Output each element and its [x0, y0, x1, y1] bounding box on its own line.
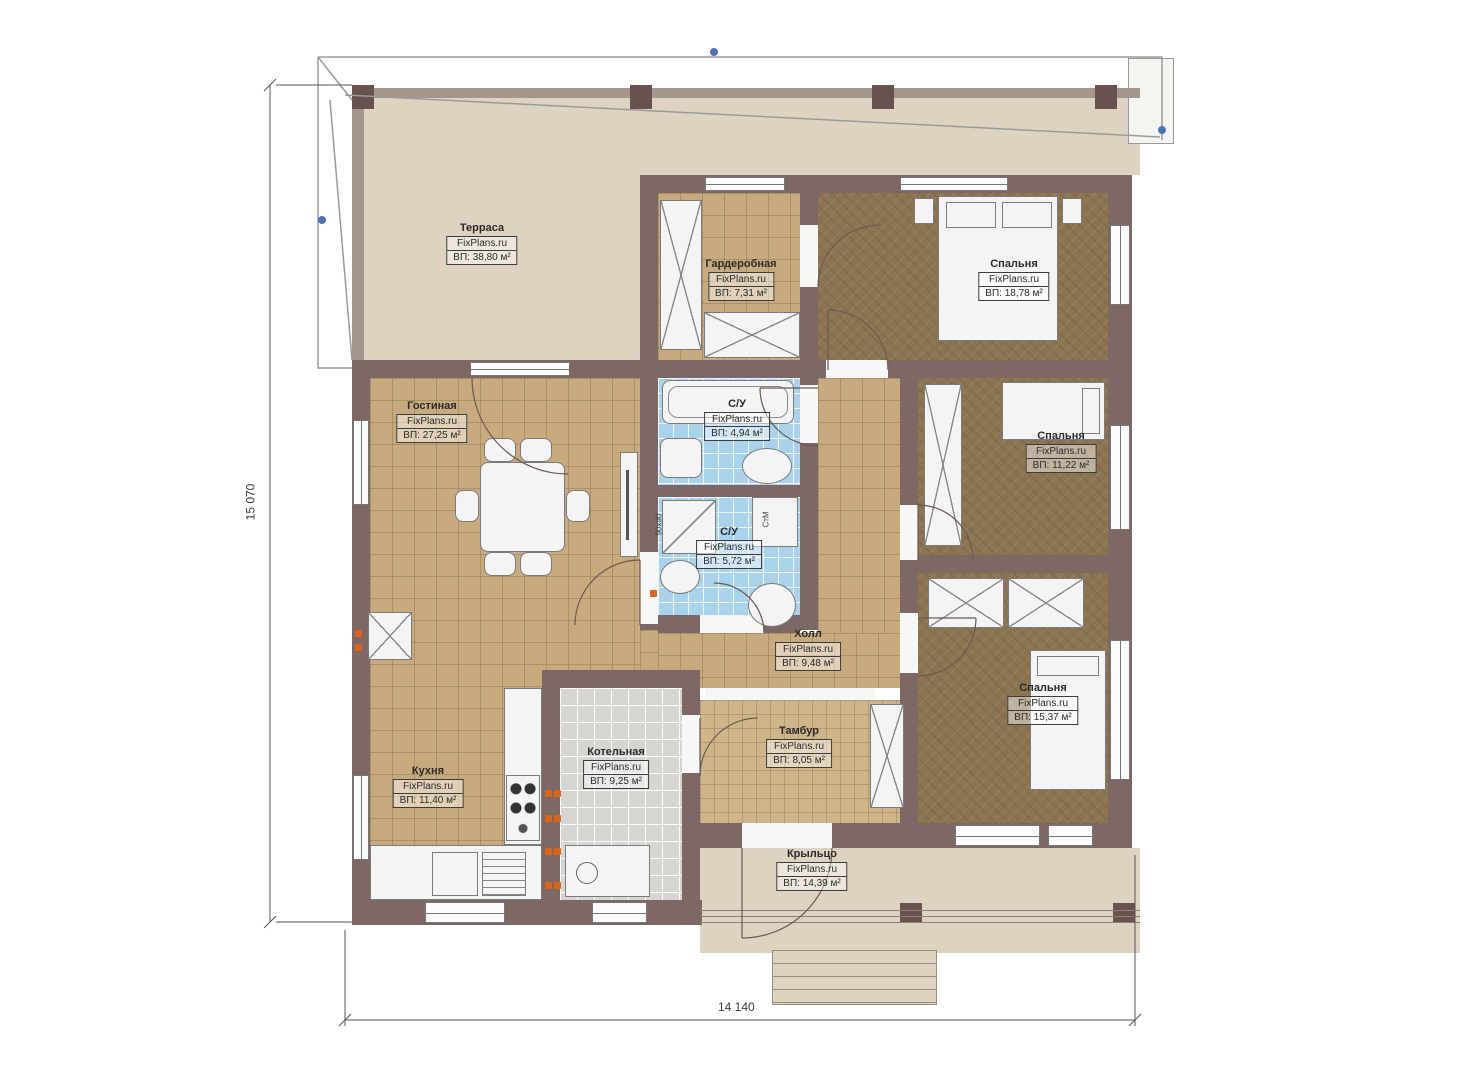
terrace-pillar [630, 85, 652, 109]
wardrobe-window [705, 177, 785, 191]
boiler-bottom-window [592, 902, 647, 923]
bottom-left-wall [352, 900, 702, 925]
chair [484, 438, 516, 462]
chair [520, 552, 552, 576]
floor-plan: СтМ 90х90 [0, 0, 1474, 1080]
tv-cabinet [620, 452, 638, 557]
dimension-bottom: 14 140 [718, 1000, 755, 1014]
washing-machine-label: СтМ [762, 511, 771, 527]
bedroom1-door-opening [826, 360, 888, 378]
kitchen-bottom-window [425, 902, 505, 923]
pillow [1002, 202, 1052, 228]
boiler-dial [576, 862, 598, 884]
terrace-top-wall [352, 88, 1140, 98]
chair [455, 490, 479, 522]
chair [484, 552, 516, 576]
chair [520, 438, 552, 462]
dining-table [480, 462, 565, 552]
boiler-door-opening [682, 715, 700, 773]
living-window [353, 420, 369, 505]
bath-divider-wall [658, 485, 800, 497]
terrace-pillar [352, 85, 374, 109]
heater-dot [554, 848, 561, 855]
wardrobe-tambour [870, 704, 904, 808]
bedroom3-bottom-window [955, 825, 1040, 846]
kitchen-side-window [353, 775, 369, 860]
pillow [1037, 656, 1099, 676]
bedroom2-window [1110, 425, 1130, 530]
living-hall-gap-floor [640, 630, 658, 670]
bedroom3-door-opening [900, 613, 918, 673]
boiler-top-wall [542, 670, 700, 688]
entrance-door-opening [742, 823, 832, 848]
porch-floor [700, 848, 1140, 953]
wardrobe-cabinet-left [660, 200, 702, 350]
room-label-tambour: Тамбур FixPlans.ruВП: 8,05 м² [766, 725, 832, 768]
heater-dot [545, 790, 552, 797]
bath1-door-opening [800, 385, 818, 443]
bedroom2-door-opening [900, 505, 918, 560]
living-top-wall [352, 360, 818, 378]
heater-dot [545, 848, 552, 855]
corridor-floor [818, 378, 900, 633]
heater-dot [545, 815, 552, 822]
heater-dot [554, 815, 561, 822]
heater-dot [554, 790, 561, 797]
room-label-bath2: С/У FixPlans.ruВП: 5,72 м² [696, 526, 762, 569]
heater-dot [355, 644, 362, 651]
bath1-sink [660, 438, 702, 478]
roof-edge-box [1128, 58, 1174, 144]
heater-dot [545, 882, 552, 889]
pillow [1082, 388, 1100, 434]
room-label-bedroom2: Спальня FixPlans.ruВП: 11,22 м² [1026, 430, 1097, 473]
nightstand [914, 198, 934, 224]
bath1-toilet [742, 448, 792, 484]
bath2-sink [748, 583, 796, 627]
room-label-wardrobe: Гардеробная FixPlans.ruВП: 7,31 м² [705, 258, 776, 301]
terrace-pillar [1095, 85, 1117, 109]
heater-dot [554, 882, 561, 889]
heater-dot [355, 630, 362, 637]
kitchen-grate [482, 852, 526, 896]
heater-dot [650, 590, 657, 597]
bath2-toilet [660, 560, 700, 594]
terrace-floor [364, 98, 1140, 175]
room-label-boiler: Котельная FixPlans.ruВП: 9,25 м² [583, 746, 649, 789]
bedroom1-side-window [1110, 225, 1130, 305]
terrace-left-wall [352, 88, 364, 360]
living-door-opening [640, 552, 658, 624]
terrace-floor-left [364, 175, 640, 360]
room-label-kitchen: Кухня FixPlans.ruВП: 11,40 м² [393, 765, 464, 808]
wardrobe-bedroom3-b [1008, 578, 1084, 628]
wardrobe-door-opening [800, 225, 818, 287]
wardrobe-bedroom3-a [928, 578, 1004, 628]
hall-tambour-threshold [705, 688, 875, 700]
pillow [946, 202, 996, 228]
bedroom3-bottom-window-2 [1048, 825, 1093, 846]
porch-steps [772, 950, 937, 1005]
fireplace [368, 612, 412, 660]
bedroom2-3-wall [918, 555, 1108, 573]
fridge [432, 852, 478, 896]
room-label-bedroom1: Спальня FixPlans.ruВП: 18,78 м² [978, 258, 1049, 301]
wardrobe-bedroom2 [924, 384, 962, 546]
nightstand [1062, 198, 1082, 224]
bedroom3-window [1110, 640, 1130, 780]
wardrobe-cabinet-bottom [704, 312, 800, 358]
room-label-bath1: С/У FixPlans.ruВП: 4,94 м² [704, 398, 770, 441]
porch-railing [700, 905, 1140, 923]
tv-screen [626, 470, 629, 540]
chair [566, 490, 590, 522]
dimension-left: 15 070 [243, 484, 257, 521]
bedroom1-window [900, 177, 1008, 191]
room-label-terrace: Терраса FixPlans.ruВП: 38,80 м² [446, 222, 517, 265]
shower-size-label: 90х90 [654, 514, 663, 536]
terrace-pillar [872, 85, 894, 109]
room-label-bedroom3: Спальня FixPlans.ruВП: 15,37 м² [1007, 682, 1078, 725]
stove [506, 775, 540, 841]
room-label-porch: Крыльцо FixPlans.ruВП: 14,39 м² [776, 848, 847, 891]
room-label-living: Гостиная FixPlans.ruВП: 27,25 м² [396, 400, 467, 443]
terrace-french-window [470, 362, 570, 376]
room-label-hall: Холл FixPlans.ruВП: 9,48 м² [775, 628, 841, 671]
